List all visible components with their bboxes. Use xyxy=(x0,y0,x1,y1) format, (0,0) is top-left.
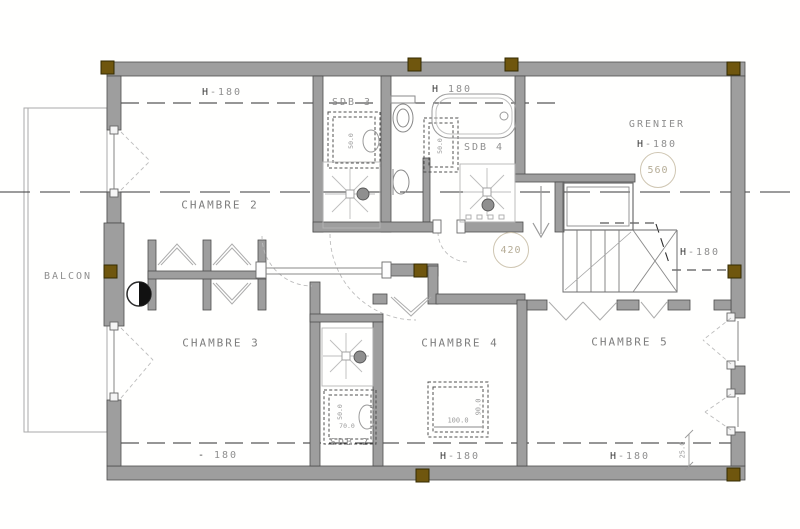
outer-wall-left xyxy=(107,400,121,466)
window-jamb xyxy=(110,189,118,197)
height-label-bottom-left: - 180 xyxy=(198,451,238,461)
shower xyxy=(323,162,380,228)
bathtub xyxy=(432,94,516,138)
interior-wall xyxy=(527,300,547,310)
shower xyxy=(322,328,373,386)
height-label-bottom-center: H-180 xyxy=(440,452,480,462)
sdb4-fixtures xyxy=(424,94,516,222)
door-jamb xyxy=(256,262,266,278)
height-label-bottom-right: H-180 xyxy=(610,452,650,462)
interior-wall xyxy=(515,174,635,182)
shower xyxy=(460,164,515,222)
column xyxy=(728,265,741,278)
section-marker xyxy=(127,282,151,306)
dim-sdb3-vanity: 50.0 xyxy=(348,133,355,149)
floor-drain xyxy=(354,351,366,363)
door-swing-arc xyxy=(438,232,468,262)
dim-skylight-height: 90.0 xyxy=(476,399,483,416)
outer-wall-right xyxy=(731,432,745,466)
vanity xyxy=(324,390,376,444)
column xyxy=(408,58,421,71)
interior-wall xyxy=(313,76,323,232)
column xyxy=(416,469,429,482)
height-label-top-center: H 180 xyxy=(432,85,472,95)
interior-wall xyxy=(668,300,690,310)
door-jamb xyxy=(382,262,391,278)
interior-wall xyxy=(515,76,525,176)
column xyxy=(414,264,427,277)
area-badge-hall: 420 xyxy=(493,232,529,268)
window-jamb xyxy=(727,361,735,369)
dim-sdb4-vanity: 50.0 xyxy=(437,138,444,154)
interior-wall xyxy=(313,222,435,232)
room-label-sdb4: SDB 4 xyxy=(464,143,504,153)
dim-right-offset: 25.0 xyxy=(680,442,687,459)
staircase xyxy=(563,183,677,292)
room-label-sdb2: SDB 2 xyxy=(330,438,370,448)
dim-sdb2-vanity-width: 70.0 xyxy=(339,423,355,430)
column xyxy=(727,468,740,481)
dim-skylight-width: 100.0 xyxy=(447,418,468,425)
stair-down-arrow xyxy=(533,186,549,237)
room-label-chambre2: CHAMBRE 2 xyxy=(181,200,259,211)
outer-wall-right xyxy=(731,76,745,318)
height-label-stair-right: H-180 xyxy=(680,248,720,258)
room-label-chambre4: CHAMBRE 4 xyxy=(421,338,499,349)
interior-wall xyxy=(465,222,523,232)
interior-wall xyxy=(310,282,320,466)
interior-wall xyxy=(617,300,639,310)
interior-wall xyxy=(714,300,731,310)
window-jamb xyxy=(110,126,118,134)
door-jamb xyxy=(433,220,441,233)
outer-wall-left xyxy=(107,76,121,130)
sdb3-fixtures xyxy=(323,112,380,228)
floor-drain xyxy=(357,188,369,200)
wash-basin xyxy=(393,169,409,195)
column xyxy=(727,62,740,75)
interior-wall xyxy=(517,300,527,466)
column xyxy=(505,58,518,71)
toilet xyxy=(391,96,415,132)
height-label-grenier: H-180 xyxy=(637,140,677,150)
interior-wall xyxy=(373,322,383,466)
closet-wall xyxy=(148,271,266,279)
area-badge-grenier: 560 xyxy=(640,152,676,188)
column xyxy=(101,61,114,74)
window-jamb xyxy=(110,393,118,401)
floor-drain xyxy=(482,199,494,211)
balcony-outline xyxy=(24,108,107,432)
window-jamb xyxy=(110,322,118,330)
wash-basin xyxy=(363,130,379,152)
floor-plan-canvas: CHAMBRE 2 CHAMBRE 3 CHAMBRE 4 CHAMBRE 5 … xyxy=(0,0,800,529)
column xyxy=(104,265,117,278)
room-label-grenier: GRENIER xyxy=(629,120,685,130)
door-swing-arc xyxy=(330,234,416,320)
interior-wall xyxy=(373,294,387,304)
dim-sdb2-vanity-depth: 50.0 xyxy=(337,404,344,420)
interior-wall xyxy=(381,76,391,232)
room-label-balcon: BALCON xyxy=(44,272,92,282)
interior-wall xyxy=(436,294,525,304)
room-label-chambre5: CHAMBRE 5 xyxy=(591,337,669,348)
room-label-chambre3: CHAMBRE 3 xyxy=(182,338,260,349)
wc-fixtures xyxy=(391,96,415,195)
room-label-sdb3: SDB 3 xyxy=(332,98,372,108)
outer-wall-top xyxy=(107,62,745,76)
interior-wall xyxy=(310,314,383,322)
height-label-top-left: H-180 xyxy=(202,88,242,98)
door-swing-arc xyxy=(262,236,312,286)
